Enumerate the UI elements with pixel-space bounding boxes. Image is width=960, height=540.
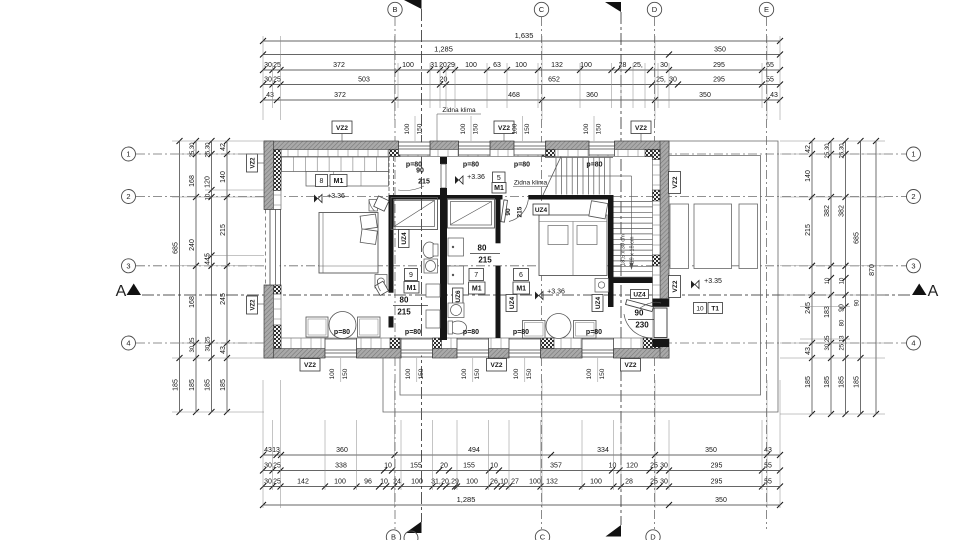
svg-text:215: 215	[478, 256, 492, 265]
svg-text:25,30: 25,30	[839, 143, 845, 159]
svg-text:150: 150	[342, 368, 349, 379]
svg-text:350: 350	[699, 92, 711, 99]
svg-text:445: 445	[204, 253, 211, 265]
svg-text:100: 100	[515, 62, 527, 69]
svg-text:100: 100	[465, 62, 477, 69]
svg-text:25: 25	[273, 463, 281, 470]
svg-text:55: 55	[764, 463, 772, 470]
svg-text:90: 90	[838, 304, 845, 312]
svg-text:100: 100	[513, 368, 520, 379]
svg-text:155: 155	[410, 463, 422, 470]
svg-text:p=80: p=80	[586, 329, 602, 336]
svg-text:10: 10	[490, 463, 498, 470]
svg-text:90: 90	[416, 168, 424, 175]
svg-text:30: 30	[264, 62, 272, 69]
svg-text:Zidna klima: Zidna klima	[514, 180, 548, 187]
svg-text:215: 215	[418, 179, 430, 186]
svg-text:43: 43	[770, 92, 778, 99]
svg-text:132: 132	[551, 62, 563, 69]
svg-text:150: 150	[596, 123, 603, 134]
svg-text:25,30: 25,30	[190, 142, 196, 158]
svg-text:185: 185	[220, 379, 227, 391]
svg-text:UZ4: UZ4	[509, 296, 516, 309]
svg-text:VZ2: VZ2	[491, 362, 503, 369]
svg-text:A: A	[116, 283, 127, 300]
svg-text:372: 372	[333, 62, 345, 69]
svg-text:26,: 26,	[490, 479, 500, 486]
svg-text:10: 10	[839, 277, 845, 284]
svg-text:43: 43	[805, 347, 812, 355]
svg-text:295: 295	[711, 479, 723, 486]
svg-text:43: 43	[220, 346, 227, 354]
svg-text:30: 30	[264, 463, 272, 470]
svg-text:p=80: p=80	[514, 162, 530, 169]
svg-text:1: 1	[911, 150, 915, 159]
svg-text:+3.36: +3.36	[547, 289, 565, 296]
svg-text:M1: M1	[334, 178, 344, 185]
svg-text:43: 43	[264, 447, 272, 454]
svg-text:VZ2: VZ2	[498, 125, 510, 132]
svg-text:685: 685	[172, 242, 179, 254]
svg-text:245: 245	[220, 293, 227, 305]
svg-text:350: 350	[715, 497, 727, 504]
svg-text:150: 150	[418, 368, 425, 379]
svg-text:VZ2: VZ2	[672, 280, 679, 292]
svg-text:360: 360	[336, 447, 348, 454]
svg-text:10,: 10,	[380, 479, 390, 486]
svg-text:28: 28	[625, 479, 633, 486]
svg-text:43: 43	[764, 447, 772, 454]
svg-text:140: 140	[805, 170, 812, 182]
svg-text:Zidna klima: Zidna klima	[442, 107, 476, 114]
svg-text:M1: M1	[472, 286, 482, 293]
svg-text:350: 350	[714, 47, 726, 54]
svg-text:25,13: 25,13	[839, 335, 845, 351]
svg-text:T1: T1	[711, 306, 719, 313]
svg-text:25: 25	[273, 479, 281, 486]
svg-text:100: 100	[402, 62, 414, 69]
svg-text:215: 215	[517, 206, 524, 217]
svg-text:+3.35: +3.35	[704, 278, 722, 285]
svg-text:7: 7	[474, 272, 478, 279]
svg-text:685: 685	[853, 232, 860, 244]
svg-text:p=80: p=80	[463, 162, 479, 169]
svg-text:UZ6: UZ6	[455, 290, 462, 303]
svg-text:150: 150	[473, 123, 480, 134]
svg-text:42: 42	[805, 145, 812, 153]
svg-text:30: 30	[264, 77, 272, 84]
svg-text:372: 372	[334, 92, 346, 99]
svg-text:468: 468	[508, 92, 520, 99]
svg-text:25: 25	[650, 479, 658, 486]
svg-text:185: 185	[824, 376, 831, 388]
svg-text:100: 100	[590, 479, 602, 486]
svg-text:13: 13	[272, 447, 280, 454]
svg-text:652: 652	[548, 77, 560, 84]
svg-text:100: 100	[405, 368, 412, 379]
svg-text:30: 30	[264, 479, 272, 486]
svg-text:25: 25	[273, 77, 281, 84]
svg-text:150: 150	[417, 123, 424, 134]
svg-text:30: 30	[660, 479, 668, 486]
svg-text:240: 240	[189, 239, 196, 251]
svg-text:338: 338	[335, 463, 347, 470]
svg-text:360: 360	[586, 92, 598, 99]
svg-text:43: 43	[266, 92, 274, 99]
svg-text:VZ2: VZ2	[251, 157, 257, 169]
svg-text:100: 100	[512, 123, 519, 134]
svg-text:30,25: 30,25	[825, 335, 831, 351]
svg-text:215: 215	[220, 224, 227, 236]
svg-text:C: C	[540, 533, 546, 540]
svg-text:168: 168	[189, 296, 196, 308]
svg-text:VZ2: VZ2	[625, 362, 637, 369]
svg-text:25: 25	[650, 463, 658, 470]
svg-text:9: 9	[409, 272, 413, 279]
svg-text:UZ4: UZ4	[535, 207, 548, 214]
svg-text:100: 100	[583, 123, 590, 134]
svg-text:295: 295	[713, 62, 725, 69]
svg-text:120: 120	[626, 463, 638, 470]
svg-text:4: 4	[911, 339, 915, 348]
svg-text:90: 90	[505, 208, 512, 216]
svg-text:5: 5	[497, 175, 501, 182]
svg-text:150: 150	[524, 123, 531, 134]
svg-text:27: 27	[511, 479, 519, 486]
svg-text:+3.36: +3.36	[467, 174, 485, 181]
svg-text:B: B	[392, 5, 397, 14]
svg-text:334: 334	[597, 447, 609, 454]
svg-text:25,30: 25,30	[825, 143, 831, 159]
svg-text:100: 100	[404, 123, 411, 134]
svg-text:382: 382	[824, 205, 831, 217]
svg-text:100: 100	[329, 368, 336, 379]
svg-text:3: 3	[126, 261, 130, 270]
svg-text:8: 8	[320, 178, 324, 185]
svg-text:D: D	[652, 5, 658, 14]
svg-text:10: 10	[384, 463, 392, 470]
svg-text:140: 140	[220, 171, 227, 183]
svg-text:295: 295	[711, 463, 723, 470]
svg-text:29: 29	[447, 62, 455, 69]
svg-text:1: 1	[126, 150, 130, 159]
svg-text:10: 10	[696, 306, 704, 313]
svg-text:VZ2: VZ2	[304, 362, 316, 369]
svg-text:120: 120	[204, 176, 211, 188]
svg-text:p=80: p=80	[334, 329, 350, 336]
svg-text:20: 20	[440, 77, 448, 84]
svg-text:503: 503	[358, 77, 370, 84]
svg-text:30: 30	[660, 62, 668, 69]
svg-text:C: C	[539, 5, 545, 14]
svg-text:p=80: p=80	[463, 329, 479, 336]
svg-text:90: 90	[854, 299, 860, 306]
svg-text:10: 10	[205, 193, 211, 200]
svg-text:185: 185	[204, 379, 211, 391]
svg-text:132: 132	[546, 479, 558, 486]
svg-text:VZ2: VZ2	[635, 125, 647, 132]
svg-text:18,5 x 30 cm: 18,5 x 30 cm	[621, 234, 627, 266]
svg-text:55: 55	[764, 479, 772, 486]
svg-text:6: 6	[519, 272, 523, 279]
svg-text:80: 80	[839, 319, 845, 326]
svg-text:2: 2	[911, 192, 915, 201]
svg-text:E: E	[764, 5, 769, 14]
svg-text:1,285: 1,285	[457, 495, 476, 504]
svg-text:25: 25	[273, 62, 281, 69]
svg-text:UZ4: UZ4	[633, 292, 646, 299]
svg-text:p=80: p=80	[586, 162, 602, 169]
svg-text:100: 100	[586, 368, 593, 379]
svg-text:185: 185	[838, 376, 845, 388]
svg-text:215: 215	[397, 308, 411, 317]
svg-text:10,: 10,	[500, 479, 510, 486]
svg-text:80: 80	[478, 244, 487, 253]
svg-text:25,30: 25,30	[205, 142, 211, 158]
svg-text:183: 183	[824, 306, 831, 318]
svg-text:245: 245	[805, 302, 812, 314]
svg-text:31: 31	[430, 62, 438, 69]
svg-text:168: 168	[189, 175, 196, 187]
svg-text:100: 100	[529, 479, 541, 486]
svg-text:230: 230	[635, 321, 649, 330]
svg-text:2: 2	[126, 192, 130, 201]
svg-text:25,: 25,	[656, 77, 666, 84]
svg-text:100: 100	[411, 479, 423, 486]
svg-text:80: 80	[400, 296, 409, 305]
svg-text:100: 100	[334, 479, 346, 486]
svg-text:30,25: 30,25	[205, 336, 211, 352]
svg-text:155: 155	[463, 463, 475, 470]
svg-text:VZ2: VZ2	[251, 299, 257, 311]
svg-text:30,25: 30,25	[190, 337, 196, 353]
svg-text:295: 295	[713, 77, 725, 84]
svg-text:357: 357	[550, 463, 562, 470]
svg-text:M1: M1	[407, 285, 417, 292]
svg-text:UZ4: UZ4	[401, 232, 408, 245]
svg-text:100: 100	[460, 123, 467, 134]
svg-text:30: 30	[660, 463, 668, 470]
svg-text:VZ2: VZ2	[336, 125, 348, 132]
svg-text:20: 20	[440, 463, 448, 470]
svg-text:1,285: 1,285	[434, 45, 453, 54]
svg-text:42: 42	[220, 143, 227, 151]
svg-text:+3.36: +3.36	[327, 193, 345, 200]
svg-text:150: 150	[526, 368, 533, 379]
svg-text:29: 29	[451, 479, 459, 486]
svg-text:185: 185	[853, 376, 860, 388]
svg-text:10: 10	[825, 277, 831, 284]
svg-text:150: 150	[599, 368, 606, 379]
svg-text:382: 382	[838, 205, 845, 217]
svg-text:215: 215	[805, 224, 812, 236]
svg-text:p=80: p=80	[405, 329, 421, 336]
svg-text:p=80: p=80	[513, 329, 529, 336]
svg-text:494: 494	[468, 447, 480, 454]
svg-text:96: 96	[364, 479, 372, 486]
svg-text:100: 100	[466, 479, 478, 486]
svg-text:185: 185	[189, 379, 196, 391]
svg-text:M1: M1	[494, 185, 504, 192]
svg-text:UZ4: UZ4	[595, 296, 602, 309]
svg-text:19 x 18 cm: 19 x 18 cm	[630, 236, 636, 263]
svg-text:3: 3	[911, 261, 915, 270]
svg-text:100: 100	[461, 368, 468, 379]
svg-text:4: 4	[126, 339, 130, 348]
svg-text:VZ2: VZ2	[672, 176, 679, 188]
svg-text:142: 142	[297, 479, 309, 486]
svg-text:150: 150	[474, 368, 481, 379]
svg-text:B: B	[391, 533, 396, 540]
svg-text:100: 100	[580, 62, 592, 69]
svg-text:A: A	[928, 283, 939, 300]
svg-text:55: 55	[766, 62, 774, 69]
svg-text:30: 30	[669, 77, 677, 84]
svg-text:185: 185	[172, 379, 179, 391]
svg-text:350: 350	[705, 447, 717, 454]
svg-text:55: 55	[766, 77, 774, 84]
svg-text:10: 10	[609, 463, 617, 470]
svg-text:1,635: 1,635	[515, 31, 534, 40]
svg-text:25,: 25,	[633, 62, 643, 69]
svg-text:D: D	[650, 533, 656, 540]
svg-text:63: 63	[493, 62, 501, 69]
svg-text:M1: M1	[516, 286, 526, 293]
svg-text:185: 185	[805, 376, 812, 388]
svg-text:20,: 20,	[441, 479, 451, 486]
svg-text:90: 90	[635, 309, 644, 318]
svg-text:28: 28	[619, 62, 627, 69]
